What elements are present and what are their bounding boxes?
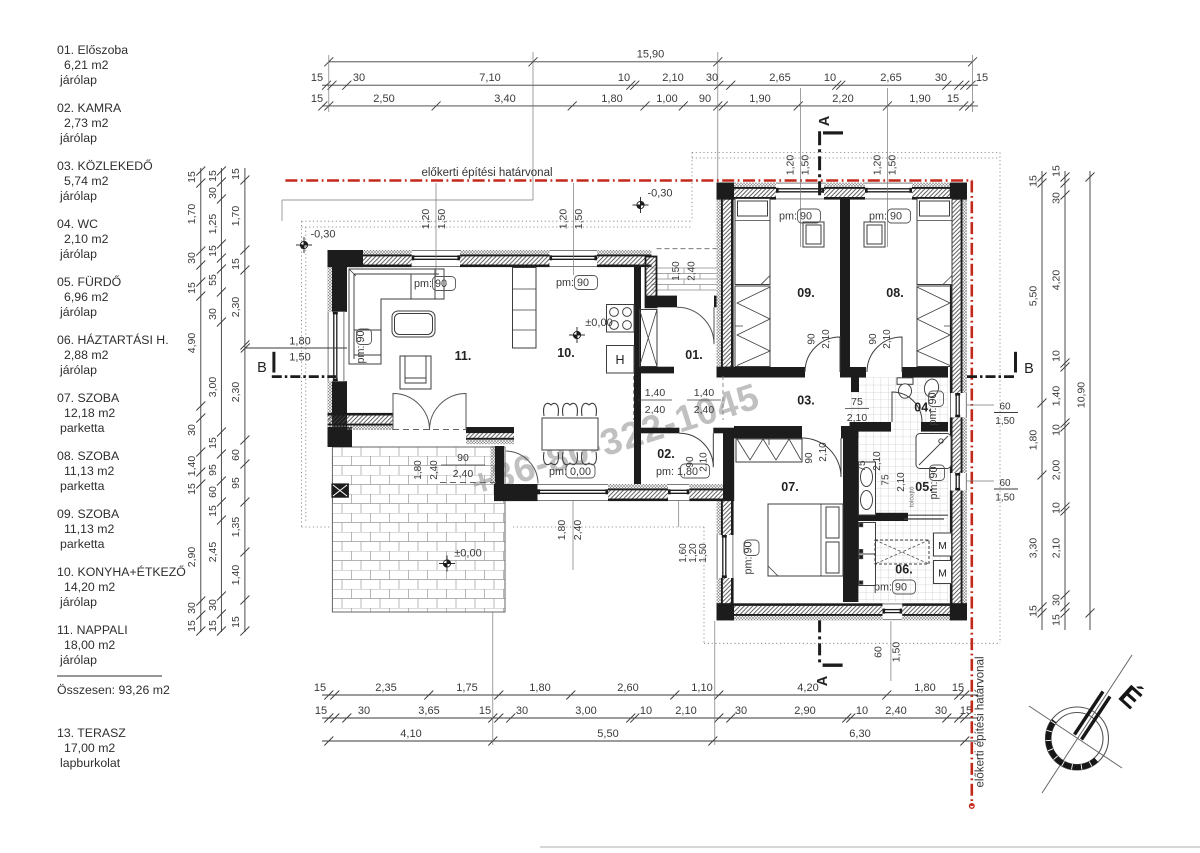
svg-text:90: 90 <box>868 333 879 345</box>
svg-text:2,10: 2,10 <box>847 412 868 424</box>
svg-text:95: 95 <box>207 464 219 476</box>
svg-text:30: 30 <box>186 424 198 436</box>
svg-text:2,88 m2: 2,88 m2 <box>64 348 109 362</box>
svg-text:09. SZOBA: 09. SZOBA <box>57 507 120 521</box>
svg-text:2,20: 2,20 <box>832 93 853 105</box>
svg-text:parketta: parketta <box>60 421 105 435</box>
svg-text:30: 30 <box>207 599 219 611</box>
svg-text:B: B <box>257 360 267 376</box>
svg-text:2,10: 2,10 <box>1050 538 1062 559</box>
svg-text:15: 15 <box>1050 165 1062 177</box>
svg-text:90: 90 <box>685 456 696 468</box>
svg-text:10: 10 <box>1050 502 1062 514</box>
svg-text:2,35: 2,35 <box>375 682 396 694</box>
svg-text:30: 30 <box>935 705 947 717</box>
svg-text:30: 30 <box>207 187 219 199</box>
svg-text:55: 55 <box>207 274 219 286</box>
svg-text:járólap: járólap <box>59 73 97 87</box>
svg-text:15: 15 <box>230 616 242 628</box>
svg-text:30: 30 <box>358 705 370 717</box>
svg-text:B: B <box>1024 361 1034 377</box>
svg-text:2,90: 2,90 <box>794 705 815 717</box>
svg-text:1,80: 1,80 <box>914 682 935 694</box>
svg-text:1,20: 1,20 <box>558 209 570 230</box>
svg-text:30: 30 <box>1050 192 1062 204</box>
svg-text:1,40: 1,40 <box>1050 386 1062 407</box>
svg-text:15,90: 15,90 <box>637 49 665 61</box>
svg-text:60: 60 <box>999 478 1011 489</box>
svg-text:1,50: 1,50 <box>671 261 682 281</box>
svg-text:4,20: 4,20 <box>1050 270 1062 291</box>
svg-text:01. Előszoba: 01. Előszoba <box>57 43 128 57</box>
svg-text:30: 30 <box>935 72 947 84</box>
svg-text:05.: 05. <box>915 480 932 494</box>
svg-text:06. HÁZTARTÁSI H.: 06. HÁZTARTÁSI H. <box>57 332 169 347</box>
svg-text:A: A <box>817 115 833 126</box>
svg-text:15: 15 <box>207 170 219 182</box>
svg-text:10: 10 <box>618 72 630 84</box>
svg-text:járólap: járólap <box>59 595 97 609</box>
svg-text:parketta: parketta <box>60 479 105 493</box>
svg-text:30: 30 <box>516 705 528 717</box>
svg-text:1,80: 1,80 <box>529 682 550 694</box>
svg-text:09.: 09. <box>797 286 814 300</box>
svg-text:3,40: 3,40 <box>494 93 515 105</box>
svg-text:pm: 90: pm: 90 <box>874 582 907 594</box>
svg-text:15: 15 <box>314 682 326 694</box>
svg-text:02. KAMRA: 02. KAMRA <box>57 101 122 115</box>
svg-text:95: 95 <box>230 477 242 489</box>
svg-text:90: 90 <box>807 333 818 345</box>
svg-text:1,20: 1,20 <box>420 209 432 230</box>
svg-text:1,80: 1,80 <box>556 520 568 541</box>
svg-text:03. KÖZLEKEDŐ: 03. KÖZLEKEDŐ <box>57 158 153 173</box>
svg-text:15: 15 <box>186 483 198 495</box>
svg-text:1,20: 1,20 <box>872 155 884 176</box>
svg-text:30: 30 <box>186 252 198 264</box>
svg-text:járólap: járólap <box>59 305 97 319</box>
svg-text:1,50: 1,50 <box>995 416 1015 427</box>
svg-text:30: 30 <box>207 308 219 320</box>
svg-text:15: 15 <box>315 705 327 717</box>
svg-text:15: 15 <box>207 437 219 449</box>
svg-text:15: 15 <box>947 93 959 105</box>
svg-text:3,30: 3,30 <box>1027 538 1039 559</box>
svg-text:90: 90 <box>457 452 469 464</box>
svg-text:14,20 m2: 14,20 m2 <box>64 580 115 594</box>
svg-text:2,40: 2,40 <box>453 468 474 480</box>
svg-text:3,00: 3,00 <box>575 705 596 717</box>
svg-text:60: 60 <box>230 449 242 461</box>
svg-text:2,40: 2,40 <box>694 404 715 416</box>
svg-text:1,50: 1,50 <box>995 493 1015 504</box>
svg-text:15: 15 <box>230 168 242 180</box>
svg-text:6,21 m2: 6,21 m2 <box>64 58 109 72</box>
svg-text:1,90: 1,90 <box>909 93 930 105</box>
svg-text:1,70: 1,70 <box>186 204 198 225</box>
svg-text:15: 15 <box>186 282 198 294</box>
svg-text:1,50: 1,50 <box>573 209 585 230</box>
svg-text:pm: 90: pm: 90 <box>869 211 902 223</box>
svg-text:13. TERASZ: 13. TERASZ <box>57 726 126 740</box>
svg-text:15: 15 <box>960 705 972 717</box>
svg-text:01.: 01. <box>685 348 702 362</box>
svg-text:02.: 02. <box>657 447 674 461</box>
svg-text:1,40: 1,40 <box>694 387 715 399</box>
svg-text:1,50: 1,50 <box>800 155 812 176</box>
svg-text:1,50: 1,50 <box>436 209 448 230</box>
svg-text:15: 15 <box>311 93 323 105</box>
svg-text:2,10: 2,10 <box>818 442 829 462</box>
svg-text:60: 60 <box>999 402 1011 413</box>
svg-text:15: 15 <box>207 245 219 257</box>
svg-text:pm: 90: pm: 90 <box>414 278 447 290</box>
svg-text:90: 90 <box>699 93 711 105</box>
svg-text:±0,00: ±0,00 <box>454 548 481 560</box>
svg-text:2,65: 2,65 <box>769 72 790 84</box>
svg-text:2,40: 2,40 <box>885 705 906 717</box>
svg-text:2,10: 2,10 <box>896 472 907 492</box>
svg-text:járólap: járólap <box>59 363 97 377</box>
svg-text:pm: 90: pm: 90 <box>556 277 589 289</box>
svg-text:15: 15 <box>207 505 219 517</box>
svg-text:-0,30: -0,30 <box>647 188 672 200</box>
svg-text:60: 60 <box>873 646 885 658</box>
svg-text:15: 15 <box>976 72 988 84</box>
svg-text:járólap: járólap <box>59 131 97 145</box>
svg-text:10: 10 <box>824 72 836 84</box>
svg-text:11,13 m2: 11,13 m2 <box>64 464 115 478</box>
svg-text:2,10: 2,10 <box>662 72 683 84</box>
svg-text:2,40: 2,40 <box>429 460 440 480</box>
svg-text:10: 10 <box>1050 424 1062 436</box>
svg-text:1,80: 1,80 <box>413 460 424 480</box>
svg-text:5,74 m2: 5,74 m2 <box>64 174 109 188</box>
svg-text:pm: 90: pm: 90 <box>779 211 812 223</box>
svg-text:15: 15 <box>1050 614 1062 626</box>
svg-text:03.: 03. <box>797 394 814 408</box>
svg-text:2,50: 2,50 <box>373 93 394 105</box>
svg-text:2,30: 2,30 <box>230 297 242 318</box>
svg-text:2,10: 2,10 <box>699 452 710 472</box>
svg-text:10: 10 <box>640 705 652 717</box>
svg-text:1,10: 1,10 <box>691 682 712 694</box>
svg-text:5,50: 5,50 <box>597 728 618 740</box>
svg-text:18,00 m2: 18,00 m2 <box>64 638 115 652</box>
svg-text:15: 15 <box>952 682 964 694</box>
svg-text:07.: 07. <box>781 480 798 494</box>
svg-text:08. SZOBA: 08. SZOBA <box>57 449 120 463</box>
svg-text:05. FÜRDŐ: 05. FÜRDŐ <box>57 274 121 289</box>
svg-text:30: 30 <box>706 72 718 84</box>
svg-text:08.: 08. <box>886 286 903 300</box>
svg-text:1,50: 1,50 <box>698 543 709 563</box>
svg-text:3,65: 3,65 <box>418 705 439 717</box>
svg-text:2,40: 2,40 <box>687 261 698 281</box>
svg-text:2,90: 2,90 <box>186 547 198 568</box>
svg-text:2,10 m2: 2,10 m2 <box>64 232 109 246</box>
svg-text:11.: 11. <box>455 349 472 363</box>
svg-text:1,25: 1,25 <box>207 214 219 235</box>
svg-text:járólap: járólap <box>59 653 97 667</box>
svg-text:előkerti építési határvonal: előkerti építési határvonal <box>975 656 987 787</box>
svg-text:15: 15 <box>186 620 198 632</box>
svg-text:75: 75 <box>857 460 868 472</box>
svg-text:30: 30 <box>1050 594 1062 606</box>
svg-text:2,10: 2,10 <box>882 329 893 349</box>
svg-text:A: A <box>815 675 831 686</box>
svg-text:±0,00: ±0,00 <box>585 317 612 329</box>
svg-text:10,90: 10,90 <box>1075 382 1087 408</box>
svg-text:járólap: járólap <box>59 247 97 261</box>
svg-text:H: H <box>615 353 624 367</box>
svg-text:60: 60 <box>207 486 219 498</box>
svg-text:-0,30: -0,30 <box>310 229 335 241</box>
svg-text:30: 30 <box>353 72 365 84</box>
svg-text:4,10: 4,10 <box>400 728 421 740</box>
svg-text:tolóajtó: tolóajtó <box>909 486 916 507</box>
svg-text:2,73 m2: 2,73 m2 <box>64 116 109 130</box>
svg-text:1,75: 1,75 <box>456 682 477 694</box>
svg-text:10: 10 <box>856 705 868 717</box>
svg-text:2,60: 2,60 <box>617 682 638 694</box>
svg-text:2,40: 2,40 <box>645 404 666 416</box>
svg-text:04.: 04. <box>914 401 931 415</box>
svg-text:1,35: 1,35 <box>230 517 242 538</box>
svg-text:2,10: 2,10 <box>872 451 883 471</box>
svg-text:lapburkolat: lapburkolat <box>60 756 121 770</box>
svg-text:parketta: parketta <box>60 537 105 551</box>
svg-text:pm: 0,00: pm: 0,00 <box>549 466 591 478</box>
svg-text:1,70: 1,70 <box>230 206 242 227</box>
svg-text:2,10: 2,10 <box>675 705 696 717</box>
svg-text:75: 75 <box>851 396 863 408</box>
svg-text:Összesen: 93,26 m2: Összesen: 93,26 m2 <box>57 683 170 697</box>
svg-text:1,80: 1,80 <box>601 93 622 105</box>
svg-text:75: 75 <box>881 474 892 486</box>
svg-text:1,40: 1,40 <box>186 456 198 477</box>
svg-text:1,40: 1,40 <box>230 565 242 586</box>
svg-text:17,00 m2: 17,00 m2 <box>64 741 115 755</box>
svg-text:10. KONYHA+ÉTKEZŐ: 10. KONYHA+ÉTKEZŐ <box>57 564 186 579</box>
svg-text:1,00: 1,00 <box>656 93 677 105</box>
svg-text:15: 15 <box>207 620 219 632</box>
svg-text:15: 15 <box>311 72 323 84</box>
svg-text:6,96 m2: 6,96 m2 <box>64 290 109 304</box>
svg-text:2,30: 2,30 <box>230 382 242 403</box>
svg-text:06.: 06. <box>895 563 912 577</box>
svg-text:10: 10 <box>1050 350 1062 362</box>
svg-text:1,50: 1,50 <box>887 155 899 176</box>
svg-text:M: M <box>938 540 947 552</box>
svg-text:15: 15 <box>479 705 491 717</box>
svg-text:4,90: 4,90 <box>186 333 198 354</box>
svg-text:1,40: 1,40 <box>645 387 666 399</box>
svg-text:6,30: 6,30 <box>849 728 870 740</box>
svg-text:12,18 m2: 12,18 m2 <box>64 406 115 420</box>
svg-text:5,50: 5,50 <box>1027 286 1039 307</box>
svg-text:1,80: 1,80 <box>1027 430 1039 451</box>
svg-text:04. WC: 04. WC <box>57 217 98 231</box>
svg-text:járólap: járólap <box>59 189 97 203</box>
svg-text:10.: 10. <box>557 346 574 360</box>
svg-text:1,50: 1,50 <box>891 642 903 663</box>
svg-text:előkerti építési határvonal: előkerti építési határvonal <box>421 167 552 179</box>
svg-text:30: 30 <box>186 602 198 614</box>
svg-text:30: 30 <box>735 705 747 717</box>
svg-text:1,90: 1,90 <box>749 93 770 105</box>
svg-text:1,50: 1,50 <box>289 352 310 364</box>
svg-text:2,00: 2,00 <box>1050 460 1062 481</box>
svg-text:15: 15 <box>186 171 198 183</box>
svg-text:M: M <box>938 568 947 580</box>
svg-text:07. SZOBA: 07. SZOBA <box>57 391 120 405</box>
svg-text:2,40: 2,40 <box>572 520 584 541</box>
svg-text:2,65: 2,65 <box>880 72 901 84</box>
svg-text:11,13 m2: 11,13 m2 <box>64 522 115 536</box>
svg-text:90: 90 <box>804 452 815 464</box>
svg-text:2,45: 2,45 <box>207 542 219 563</box>
svg-text:2,10: 2,10 <box>821 329 832 349</box>
svg-text:11. NAPPALI: 11. NAPPALI <box>57 623 128 637</box>
svg-text:7,10: 7,10 <box>479 72 500 84</box>
svg-text:1,20: 1,20 <box>785 155 797 176</box>
svg-text:3,00: 3,00 <box>207 377 219 398</box>
svg-text:15: 15 <box>230 258 242 270</box>
svg-text:1,80: 1,80 <box>289 336 310 348</box>
